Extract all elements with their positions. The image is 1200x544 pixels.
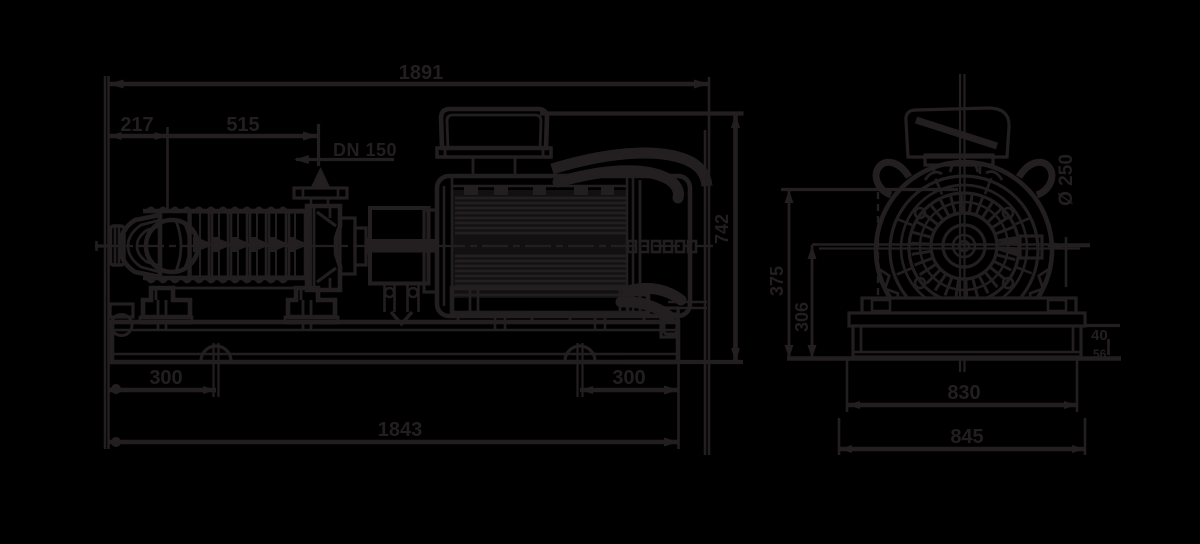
svg-text:306: 306 (792, 302, 812, 332)
svg-text:1843: 1843 (378, 419, 423, 441)
svg-text:515: 515 (226, 114, 259, 136)
svg-text:56: 56 (1093, 347, 1107, 361)
svg-text:375: 375 (767, 266, 787, 296)
svg-text:830: 830 (947, 382, 980, 404)
svg-text:742: 742 (712, 214, 732, 244)
svg-text:845: 845 (950, 426, 983, 448)
svg-text:40: 40 (1091, 327, 1108, 344)
svg-text:300: 300 (149, 367, 182, 389)
svg-text:300: 300 (612, 367, 645, 389)
svg-text:Ø 250: Ø 250 (1056, 154, 1077, 206)
svg-text:217: 217 (120, 114, 153, 136)
svg-text:DN 150: DN 150 (333, 140, 397, 160)
svg-text:1891: 1891 (399, 62, 444, 84)
